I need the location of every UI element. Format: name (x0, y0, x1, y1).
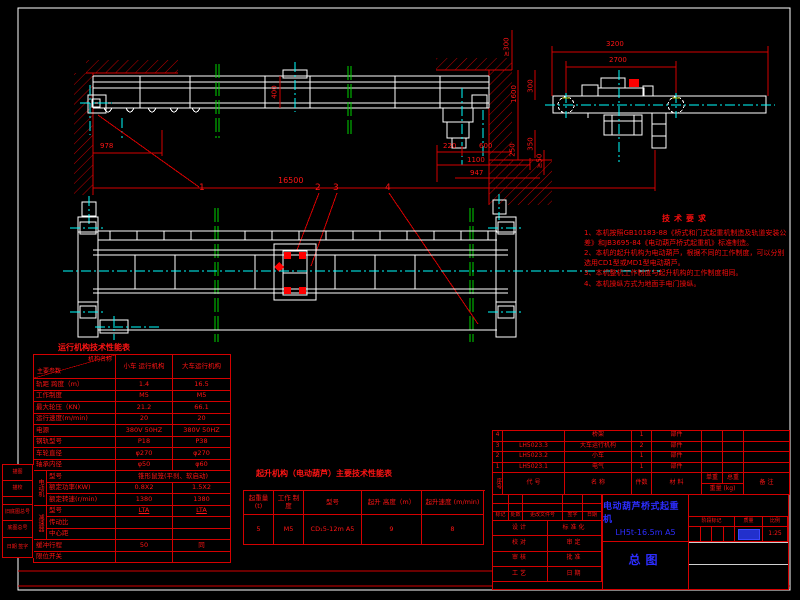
bom-note (744, 442, 790, 453)
product-model: LH5t-16.5m A5 (615, 528, 675, 537)
table-row: 电源380V 50HZ380V 50HZ (34, 425, 231, 437)
bom-total-weight (723, 452, 744, 463)
bom-no: 3 (493, 442, 503, 453)
dim-947: 947 (470, 169, 483, 177)
balloon-4: 4 (385, 183, 391, 193)
table-cell (116, 552, 173, 564)
header-weight-kg: 重量 (kg) (702, 483, 743, 494)
table-cell: φ60 (173, 460, 231, 472)
bom-code: LH5023.3 (503, 442, 565, 453)
revision-header-cell: 处数 (509, 512, 523, 521)
table-cell: 缓冲行程 (34, 540, 116, 552)
revision-cell (563, 495, 583, 504)
table-row: 1LH5023.1电气1部件 (493, 463, 790, 474)
dim-300: 300 (527, 79, 535, 92)
stage-headers: 阶段标记质量比例 (689, 517, 788, 527)
stage-mark-cell (701, 527, 713, 542)
bom-name: 大车运行机构 (565, 442, 632, 453)
header-weight: 单重 总重 重量 (kg) (702, 473, 744, 495)
table-cell: P18 (116, 437, 173, 449)
signature-label: 日期 (548, 567, 602, 582)
dim-400: 400 (271, 85, 279, 98)
margin-blocks: 描图描校旧底图总号底图总号日期 签字 (2, 464, 34, 558)
bom-no: 1 (493, 463, 503, 474)
table-row: 型号锥形鼠笼(平刹、软启动) (34, 471, 231, 483)
bom-material: 部件 (652, 452, 702, 463)
stage-values-row: 1:25 (689, 527, 788, 542)
dim-978: 978 (100, 142, 113, 150)
bom-qty: 1 (632, 431, 652, 442)
table-cell: 锥形鼠笼(平刹、软启动) (116, 471, 231, 483)
table-cell: 限位开关 (34, 552, 116, 564)
table-cell (173, 552, 231, 564)
table-cell: M5 (116, 391, 173, 403)
table-cell: LTA (173, 506, 231, 518)
margin-block-label (3, 497, 33, 505)
technical-notes: 技术要求 1、本机按照GB10183-88《桥式和门式起重机制造及轨道安装公差》… (584, 213, 788, 290)
table-row: 轨距 跨度（m）1.416.5 (34, 379, 231, 391)
revision-cell (583, 495, 602, 504)
signature-label: 标准化 (548, 521, 602, 536)
tech-note-line: 3、本机整机工作制度与起升机构的工作制度相同。 (584, 269, 788, 279)
header-material: 材 料 (652, 473, 702, 495)
bom-name: 小车 (565, 452, 632, 463)
revision-cell (509, 495, 523, 504)
dim-1600: 1600 (510, 85, 518, 103)
bom-material: 部件 (652, 442, 702, 453)
table-cell: 型号 (47, 471, 116, 483)
table-row: 3LH5023.3大车运行机构2部件 (493, 442, 790, 453)
corner-label-top: 机构名称 (88, 357, 112, 364)
table-row: 5M5CD₁5-12m A598 (244, 515, 485, 545)
signature-label: 工艺 (493, 567, 548, 582)
table-cell: 工作制度 (34, 391, 116, 403)
cad-drawing-canvas: 978 16500 220 600 1100 947 400 ≥300 1600… (0, 0, 800, 600)
table-cell: 钢轨型号 (34, 437, 116, 449)
dim-250: 250 (509, 143, 517, 156)
revision-header-cell: 更改文件号 (523, 512, 563, 521)
table-cell: M5 (173, 391, 231, 403)
table-row: 描校 (3, 481, 34, 497)
table-cell: 20 (173, 414, 231, 426)
table-row: 传动比 (34, 517, 231, 529)
bom-code (503, 431, 565, 442)
signature-label: 审核 (493, 552, 548, 567)
table-cell: φ270 (116, 448, 173, 460)
tech-note-line: 2、本机的起升机构为电动葫芦，根据不同的工作制度，可以分别选用CD1型或MD1型… (584, 249, 788, 268)
elevation-dimensions (93, 30, 655, 324)
table-row: 轴承内径φ50φ60 (34, 460, 231, 472)
revision-header-cell: 日期 (583, 512, 602, 521)
parts-list-header: 序号 代 号 名 称 件数 材 料 单重 总重 重量 (kg) 备 注 (493, 473, 790, 495)
tech-note-line: 1、本机按照GB10183-88《桥式和门式起重机制造及轨道安装公差》和JB36… (584, 229, 788, 248)
signature-row: 工艺日期 (493, 567, 602, 582)
elevation-centerlines (80, 62, 499, 224)
row-group-label: 电动机 (35, 471, 46, 506)
bom-code: LH5023.1 (503, 463, 565, 474)
table-cell: 轴承内径 (34, 460, 116, 472)
table-row: 型号LTALTA (34, 506, 231, 518)
table-cell (116, 517, 173, 529)
table-row: 描图 (3, 465, 34, 481)
hoist-value-cell: CD₁5-12m A5 (304, 515, 362, 545)
revision-cell (493, 504, 509, 513)
dim-1100: 1100 (467, 156, 485, 164)
signature-label: 设计 (493, 521, 548, 536)
revision-cell (523, 504, 563, 513)
table-row: 阶段标记质量比例 (689, 517, 788, 527)
dim-2700: 2700 (609, 56, 627, 64)
stage-scale-area: 阶段标记质量比例 1:25 (689, 495, 788, 589)
table-row (493, 504, 602, 513)
signature-row: 校对审定 (493, 536, 602, 551)
stage-mark-cell (689, 527, 701, 542)
margin-block-label: 旧底图总号 (3, 505, 33, 521)
hoist-mechanism-table: 起重量 (t)工作 制度型号起升 高度（m）起升速度 (m/min)5M5CD₁… (243, 490, 485, 545)
hoist-table-title: 起升机构（电动葫芦）主要技术性能表 (256, 468, 392, 479)
table-row: 运行速度(m/min)2020 (34, 414, 231, 426)
header-qty: 件数 (632, 473, 652, 495)
tech-note-line: 4、本机操纵方式为地面手电门操纵。 (584, 280, 788, 290)
plan-view-linework (63, 217, 660, 340)
table-cell: 型号 (47, 506, 116, 518)
run-mechanism-table: 机构名称 主要参数 小车 运行机构 大车运行机构 轨距 跨度（m）1.416.5… (33, 354, 231, 563)
table-row: 2LH5023.2小车1部件 (493, 452, 790, 463)
revision-grid (493, 495, 602, 512)
bom-qty: 2 (632, 442, 652, 453)
hoist-header-cell: 工作 制度 (274, 491, 304, 515)
table-cell: 中心距 (47, 529, 116, 541)
table-row: 标记处数更改文件号签字日期 (493, 512, 602, 521)
table-cell: 电源 (34, 425, 116, 437)
weight-cell (735, 527, 763, 542)
table-cell: 车轮直径 (34, 448, 116, 460)
bom-qty: 1 (632, 452, 652, 463)
table-corner-cell: 机构名称 主要参数 (34, 355, 116, 379)
table-row (493, 495, 602, 504)
header-note: 备 注 (744, 473, 790, 495)
balloon-2: 2 (315, 183, 321, 193)
title-block: 标记处数更改文件号签字日期 设计标准化校对审定审核批准工艺日期 电动葫芦桥式起重… (492, 494, 789, 590)
table-cell: 0.8X2 (116, 483, 173, 495)
run-table-body: 轨距 跨度（m）1.416.5工作制度M5M5最大轮压（KN）21.266.1运… (34, 379, 231, 563)
product-name: 电动葫芦桥式起重机 (603, 499, 688, 525)
table-cell: LTA (116, 506, 173, 518)
margin-block-label: 描图 (3, 465, 33, 481)
header-no: 序号 (493, 473, 503, 495)
table-row: 中心距 (34, 529, 231, 541)
header-unit-weight: 单重 (702, 473, 722, 483)
table-cell: 1380 (116, 494, 173, 506)
bom-unit-weight (702, 442, 723, 453)
bom-unit-weight (702, 452, 723, 463)
run-table-title: 运行机构技术性能表 (58, 342, 130, 353)
table-cell: 轨距 跨度（m） (34, 379, 116, 391)
table-cell (116, 529, 173, 541)
bom-note (744, 431, 790, 442)
corner-label-bottom: 主要参数 (37, 369, 61, 376)
table-cell: 20 (116, 414, 173, 426)
stage-mark-cell (712, 527, 724, 542)
table-cell: 66.1 (173, 402, 231, 414)
revision-cell (493, 495, 509, 504)
blank-strip (689, 495, 788, 517)
table-cell: φ50 (116, 460, 173, 472)
stage-header-cell: 质量 (735, 517, 763, 527)
table-cell: 1.5X2 (173, 483, 231, 495)
dim-350: 350 (527, 137, 535, 150)
selected-value-highlight (738, 529, 760, 540)
table-cell: 同 (173, 540, 231, 552)
table-row: 限位开关 (34, 552, 231, 564)
margin-block-label: 日期 签字 (3, 538, 33, 558)
technical-notes-title: 技术要求 (584, 213, 788, 224)
table-row: 额定转速(r/min)13801380 (34, 494, 231, 506)
table-row: 日期 签字 (3, 538, 34, 558)
bom-unit-weight (702, 431, 723, 442)
signature-label: 审定 (548, 536, 602, 551)
margin-block-label: 描校 (3, 481, 33, 497)
margin-block-label: 底图总号 (3, 521, 33, 538)
drawing-name-area: 电动葫芦桥式起重机 LH5t-16.5m A5 总图 (603, 495, 689, 589)
table-cell: 额定功率(KW) (47, 483, 116, 495)
table-cell: φ270 (173, 448, 231, 460)
bom-material: 部件 (652, 463, 702, 474)
bom-qty: 1 (632, 463, 652, 474)
table-row: 最大轮压（KN）21.266.1 (34, 402, 231, 414)
header-total-weight: 总重 (722, 473, 743, 483)
end-view-linework (545, 46, 775, 162)
stage-header-cell: 比例 (763, 517, 788, 527)
bom-note (744, 463, 790, 474)
stage-mark-cell (724, 527, 736, 542)
dim-ge50: ≥50 (535, 154, 543, 169)
dim-3200: 3200 (606, 40, 624, 48)
revision-cell (523, 495, 563, 504)
hoist-header-cell: 型号 (304, 491, 362, 515)
header-code: 代 号 (503, 473, 565, 495)
bom-unit-weight (702, 463, 723, 474)
bom-total-weight (723, 463, 744, 474)
bom-no: 4 (493, 431, 503, 442)
balloon-1: 1 (199, 183, 205, 193)
revision-labels: 标记处数更改文件号签字日期 (493, 512, 602, 521)
bom-material: 部件 (652, 431, 702, 442)
column-header-small-trolley: 小车 运行机构 (116, 355, 173, 379)
table-cell (173, 529, 231, 541)
bom-total-weight (723, 442, 744, 453)
header-name: 名 称 (565, 473, 632, 495)
stage-header-cell: 阶段标记 (689, 517, 735, 527)
table-cell: 21.2 (116, 402, 173, 414)
balloon-3: 3 (333, 183, 339, 193)
table-cell: 传动比 (47, 517, 116, 529)
hoist-header-cell: 起升速度 (m/min) (422, 491, 484, 515)
technical-notes-body: 1、本机按照GB10183-88《桥式和门式起重机制造及轨道安装公差》和JB36… (584, 229, 788, 289)
bom-note (744, 452, 790, 463)
table-row: 旧底图总号 (3, 505, 34, 521)
hoist-header-cell: 起升 高度（m） (362, 491, 422, 515)
stage-mark-cells (689, 527, 735, 542)
table-cell: 380V 50HZ (116, 425, 173, 437)
scale-cell: 1:25 (763, 527, 788, 542)
red-marker-block (629, 79, 639, 87)
table-row (3, 497, 34, 505)
bom-code: LH5023.2 (503, 452, 565, 463)
table-cell: 1380 (173, 494, 231, 506)
dim-16500: 16500 (278, 176, 303, 185)
revision-signature-area: 标记处数更改文件号签字日期 设计标准化校对审定审核批准工艺日期 (493, 495, 603, 589)
table-row: 额定功率(KW)0.8X21.5X2 (34, 483, 231, 495)
dim-600: 600 (479, 142, 492, 150)
hoist-value-cell: 8 (422, 515, 484, 545)
table-row: 缓冲行程50同 (34, 540, 231, 552)
table-row: 工作制度M5M5 (34, 391, 231, 403)
table-cell (173, 517, 231, 529)
table-row: 底图总号 (3, 521, 34, 538)
table-row: 车轮直径φ270φ270 (34, 448, 231, 460)
table-cell: 运行速度(m/min) (34, 414, 116, 426)
bom-total-weight (723, 431, 744, 442)
parts-list: 4桥架1部件3LH5023.3大车运行机构2部件2LH5023.2小车1部件1L… (492, 430, 790, 495)
revision-header-cell: 标记 (493, 512, 509, 521)
signature-row: 审核批准 (493, 552, 602, 567)
bom-name: 桥架 (565, 431, 632, 442)
dim-220: 220 (443, 142, 456, 150)
revision-cell (509, 504, 523, 513)
revision-cell (563, 504, 583, 513)
hoist-value-cell: 9 (362, 515, 422, 545)
table-cell: 380V 50HZ (173, 425, 231, 437)
table-cell: 额定转速(r/min) (47, 494, 116, 506)
section-lines (215, 64, 473, 342)
revision-header-cell: 签字 (563, 512, 583, 521)
hoist-value-cell: M5 (274, 515, 304, 545)
blank-row (689, 564, 788, 589)
table-row: 起重量 (t)工作 制度型号起升 高度（m）起升速度 (m/min) (244, 491, 485, 515)
column-header-big-travel: 大车运行机构 (173, 355, 231, 379)
dim-ge300: ≥300 (503, 37, 511, 56)
table-cell: P38 (173, 437, 231, 449)
parts-list-body: 4桥架1部件3LH5023.3大车运行机构2部件2LH5023.2小车1部件1L… (493, 431, 790, 473)
blank-row (689, 542, 788, 564)
hoist-header-cell: 起重量 (t) (244, 491, 274, 515)
hoist-value-cell: 5 (244, 515, 274, 545)
wall-hatching (74, 58, 552, 205)
table-cell: 最大轮压（KN） (34, 402, 116, 414)
table-cell: 50 (116, 540, 173, 552)
row-group-label: 减速器 (35, 506, 46, 541)
table-cell: 1.4 (116, 379, 173, 391)
revision-cell (583, 504, 602, 513)
signature-label: 校对 (493, 536, 548, 551)
table-cell: 16.5 (173, 379, 231, 391)
table-row: 4桥架1部件 (493, 431, 790, 442)
signature-rows: 设计标准化校对审定审核批准工艺日期 (493, 521, 602, 582)
bom-name: 电气 (565, 463, 632, 474)
signature-row: 设计标准化 (493, 521, 602, 536)
sheet-name: 总图 (628, 551, 662, 568)
signature-label: 批准 (548, 552, 602, 567)
bom-no: 2 (493, 452, 503, 463)
table-row: 钢轨型号P18P38 (34, 437, 231, 449)
